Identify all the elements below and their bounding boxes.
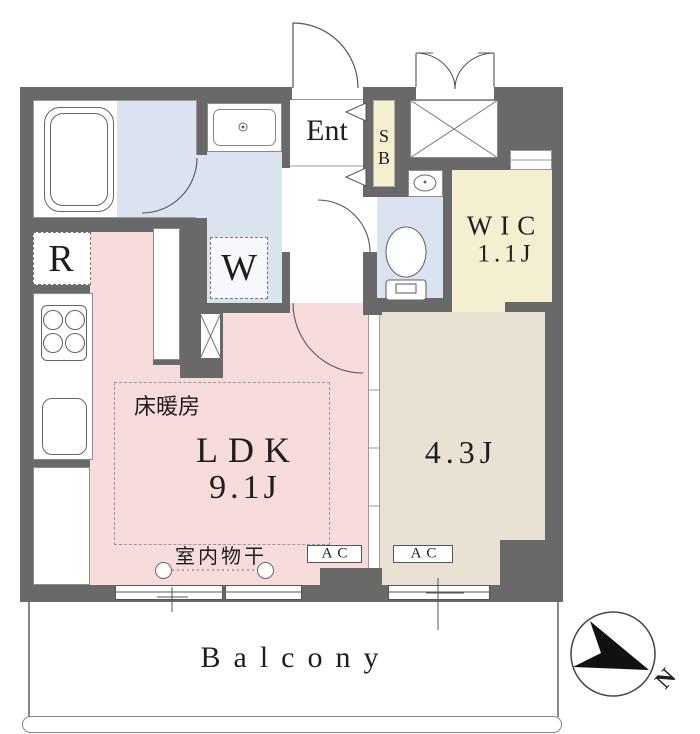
kitchen-counter-lower (33, 467, 90, 585)
bathroom-door-opening (196, 155, 207, 218)
window (115, 585, 223, 600)
balcony-side-line (28, 602, 30, 717)
kitchen-sink (42, 398, 87, 455)
entrance-door-arc (293, 23, 358, 88)
ldk-bedroom-sliding-door (368, 314, 380, 570)
shoe-box-label-top: S (379, 127, 389, 145)
north-label: N (651, 665, 680, 694)
bathroom-wet-floor (117, 101, 196, 217)
ac-label-ldk: AC (322, 547, 353, 562)
wic-name-label: WIC (467, 213, 543, 240)
kitchen-cabinet (153, 228, 180, 360)
entrance-label: Ent (306, 116, 348, 146)
stove (41, 305, 87, 361)
meter-box (410, 100, 498, 158)
pipe-shaft (200, 313, 221, 359)
toilet-basin-counter (408, 170, 443, 197)
drying-hook (155, 562, 172, 579)
refrigerator-label: R (48, 240, 73, 278)
wash-basin (213, 109, 276, 146)
meter-box-opening (416, 87, 494, 100)
bedroom-wall-notch (500, 540, 545, 585)
balcony-label: Balcony (201, 643, 392, 673)
entrance-door-opening (292, 87, 363, 100)
washroom-door-opening (282, 168, 290, 252)
ldk-floor (90, 232, 153, 365)
balcony-side-line (557, 602, 559, 717)
wall-jog-bottom (320, 568, 382, 602)
bedroom-size-label: 4.3J (425, 436, 497, 468)
ac-label-bedroom: AC (411, 547, 442, 562)
wall-patch (363, 298, 382, 315)
window (388, 585, 490, 600)
ldk-name-label: LDK (196, 432, 300, 468)
floor-heating-label: 床暖房 (134, 396, 200, 418)
ldk-size-label: 9.1J (209, 471, 281, 505)
floorplan-canvas: Ent S B R W WIC 1.1J LDK 9.1J 4.3J 床暖房 室… (0, 0, 700, 734)
shoe-box-label-bottom: B (378, 149, 390, 167)
north-compass-icon (571, 612, 655, 696)
toilet-floor (377, 197, 443, 298)
wic-door-opening (510, 150, 552, 170)
toilet-door-opening (363, 197, 377, 252)
washer-label: W (221, 249, 257, 287)
indoor-drying-label: 室内物干 (175, 547, 267, 567)
meter-box-door-arcs (416, 53, 494, 89)
bathtub-inner (50, 113, 108, 206)
window (225, 585, 302, 600)
wic-size-label: 1.1J (478, 242, 535, 267)
balcony-railing (22, 716, 562, 733)
